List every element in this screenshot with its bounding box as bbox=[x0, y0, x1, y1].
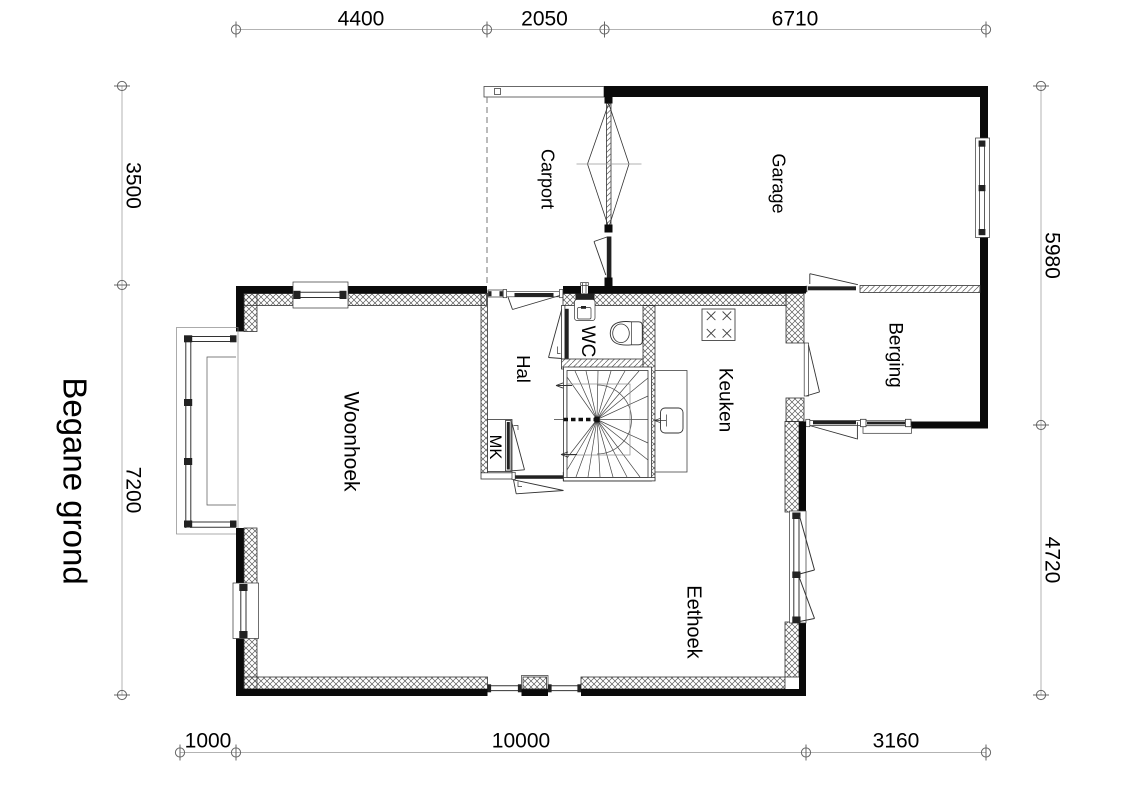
svg-text:7200: 7200 bbox=[122, 467, 145, 514]
svg-text:4720: 4720 bbox=[1041, 537, 1064, 584]
svg-text:10000: 10000 bbox=[492, 730, 550, 753]
svg-text:3500: 3500 bbox=[122, 162, 145, 209]
svg-text:WC: WC bbox=[577, 326, 598, 358]
svg-text:Hal: Hal bbox=[513, 355, 534, 383]
svg-text:Berging: Berging bbox=[885, 322, 906, 388]
svg-text:Eethoek: Eethoek bbox=[682, 585, 704, 659]
svg-text:1000: 1000 bbox=[185, 730, 232, 753]
svg-text:3160: 3160 bbox=[873, 730, 920, 753]
svg-text:Begane grond: Begane grond bbox=[57, 377, 94, 584]
svg-text:Keuken: Keuken bbox=[715, 368, 736, 432]
svg-text:MK: MK bbox=[486, 435, 504, 460]
svg-text:6710: 6710 bbox=[772, 8, 819, 31]
svg-text:2050: 2050 bbox=[521, 8, 568, 31]
svg-text:Garage: Garage bbox=[769, 153, 789, 213]
svg-text:Carport: Carport bbox=[537, 149, 557, 209]
svg-text:5980: 5980 bbox=[1041, 232, 1064, 279]
svg-text:Woonhoek: Woonhoek bbox=[340, 391, 363, 492]
svg-text:4400: 4400 bbox=[338, 8, 385, 31]
